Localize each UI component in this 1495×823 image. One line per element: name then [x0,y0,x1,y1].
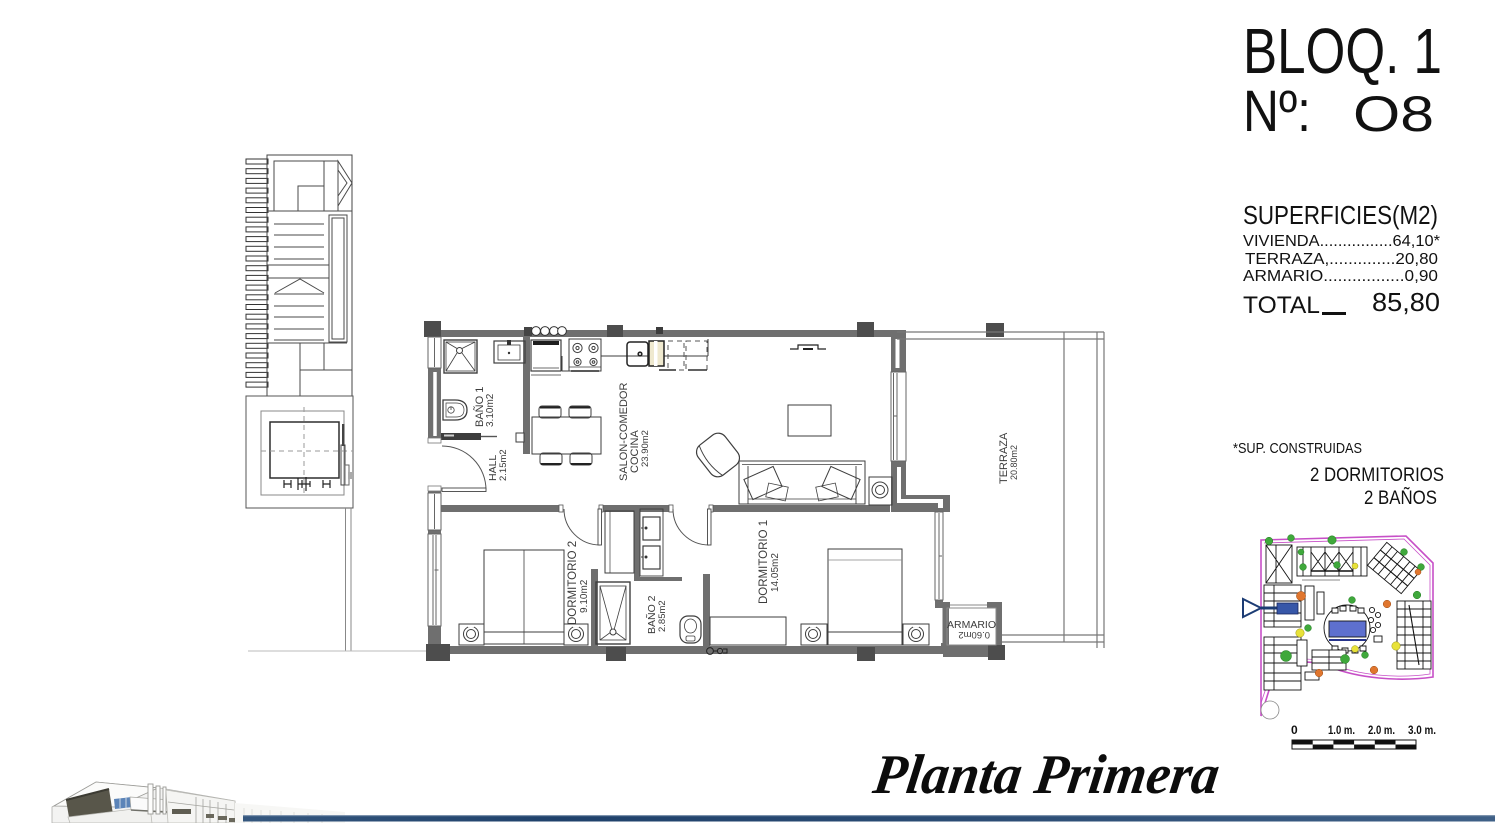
svg-text:2.85m2: 2.85m2 [657,600,668,632]
svg-text:TOTAL: TOTAL [1243,292,1320,319]
svg-text:Planta Primera: Planta Primera [869,744,1224,806]
svg-text:14.05m2: 14.05m2 [770,553,781,592]
svg-text:0: 0 [1291,723,1298,737]
svg-text:3.0 m.: 3.0 m. [1408,723,1436,737]
svg-text:VIVIENDA................64,10*: VIVIENDA................64,10* [1243,233,1440,250]
svg-text:BLOQ. 1: BLOQ. 1 [1243,15,1442,87]
svg-text:9.10m2: 9.10m2 [579,579,590,613]
svg-text:DORMITORIO 1: DORMITORIO 1 [758,520,770,604]
svg-text:TERRAZA,..............20,80: TERRAZA,..............20,80 [1245,251,1438,268]
svg-text:2.15m2: 2.15m2 [498,449,509,481]
svg-text:2 BAÑOS: 2 BAÑOS [1364,487,1437,509]
svg-text:23.90m2: 23.90m2 [640,430,651,467]
svg-text:3.10m2: 3.10m2 [485,393,496,427]
svg-text:0.60m2: 0.60m2 [958,629,990,640]
svg-text:DORMITORIO 2: DORMITORIO 2 [567,541,579,625]
svg-text:*SUP. CONSTRUIDAS: *SUP. CONSTRUIDAS [1233,440,1362,457]
svg-text:O8: O8 [1353,86,1434,142]
svg-text:ARMARIO.................0,90: ARMARIO.................0,90 [1243,268,1438,285]
svg-text:1.0 m.: 1.0 m. [1328,723,1355,737]
svg-text:20.80m2: 20.80m2 [1009,445,1019,480]
svg-text:2.0 m.: 2.0 m. [1368,723,1395,737]
svg-text:85,80: 85,80 [1372,287,1440,317]
svg-text:2 DORMITORIOS: 2 DORMITORIOS [1310,465,1444,486]
svg-text:Nº:: Nº: [1243,79,1311,144]
svg-text:SUPERFICIES(M2): SUPERFICIES(M2) [1243,200,1438,230]
